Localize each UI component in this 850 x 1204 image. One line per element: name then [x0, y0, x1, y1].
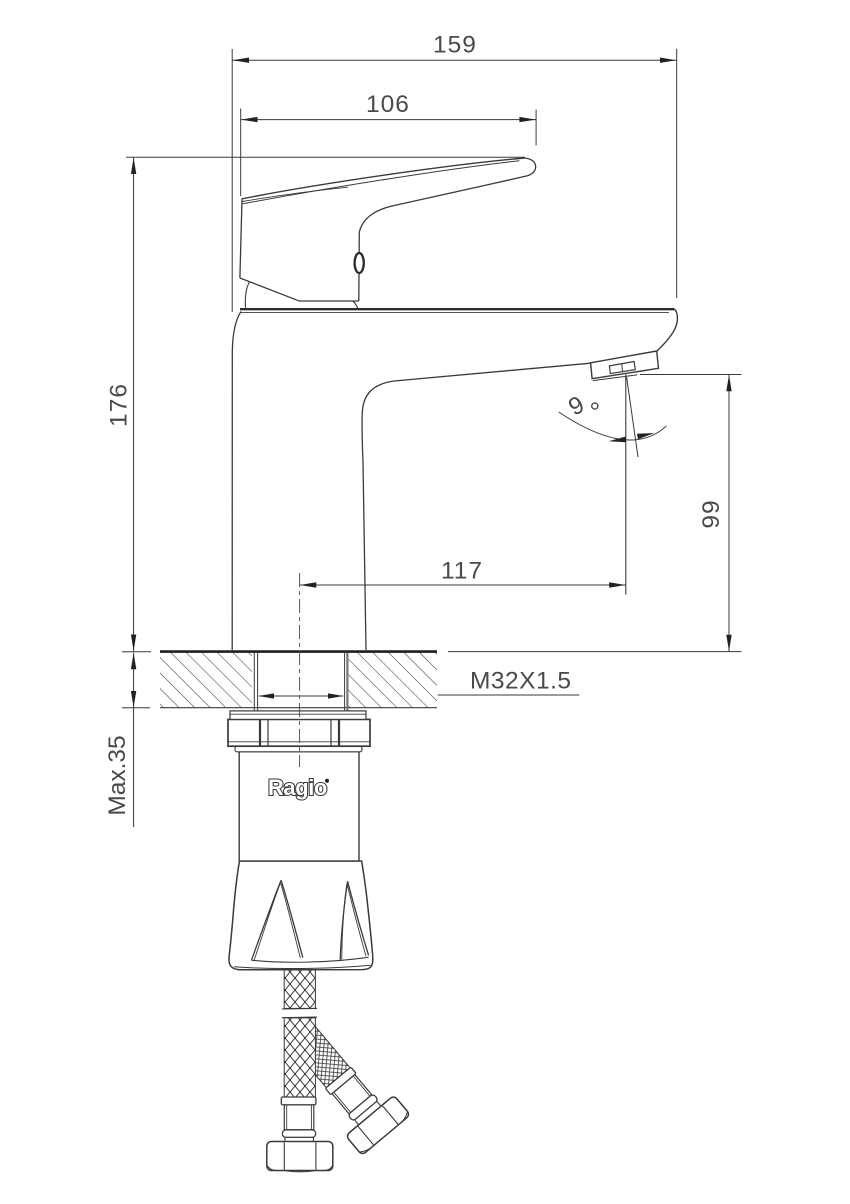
svg-text:176: 176	[106, 383, 133, 427]
svg-text:M32X1.5: M32X1.5	[470, 668, 572, 695]
svg-text:159: 159	[433, 32, 477, 59]
svg-text:99: 99	[698, 499, 725, 528]
svg-text:117: 117	[441, 558, 483, 585]
svg-text:106: 106	[366, 91, 410, 118]
svg-text:Max.35: Max.35	[104, 735, 131, 815]
svg-text:Ragio: Ragio	[268, 775, 327, 800]
